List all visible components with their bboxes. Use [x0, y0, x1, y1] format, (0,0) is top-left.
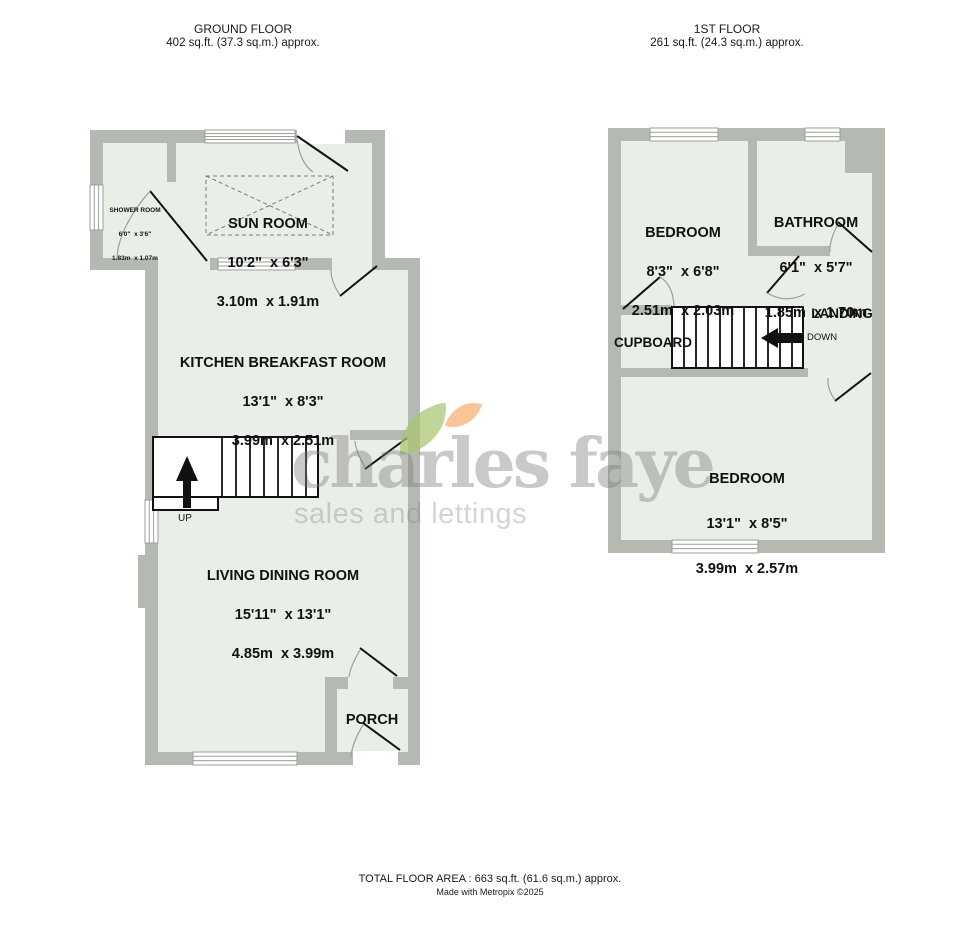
ground-floor-header: GROUND FLOOR 402 sq.ft. (37.3 sq.m.) app… [93, 22, 393, 50]
living-room-label: LIVING DINING ROOM 15'11" x 13'1" 4.85m … [158, 544, 408, 687]
floorplan-page: charles faye sales and lettings GROUND F… [0, 0, 980, 935]
stairs-up-label: UP [170, 513, 200, 524]
porch-exterior-door-gap [353, 751, 398, 766]
bedroom2-label: BEDROOM 13'1" x 8'5" 3.99m x 2.57m [647, 442, 847, 607]
kitchen-label: KITCHEN BREAKFAST ROOM 13'1" x 8'3" 3.99… [158, 331, 408, 474]
first-floor-area: 261 sq.ft. (24.3 sq.m.) approx. [577, 36, 877, 50]
first-floor-title: 1ST FLOOR [577, 22, 877, 36]
cupboard-label: CUPBOARD [592, 335, 714, 350]
total-floor-area: TOTAL FLOOR AREA : 663 sq.ft. (61.6 sq.m… [290, 873, 690, 886]
shower-room-label: SHOWER ROOM 6'0" x 3'6" 1.83m x 1.07m [95, 191, 175, 279]
living-front-window [193, 752, 297, 765]
footer: TOTAL FLOOR AREA : 663 sq.ft. (61.6 sq.m… [290, 873, 690, 899]
landing-label: LANDING [782, 306, 902, 321]
porch-label: PORCH [322, 712, 422, 728]
bedroom1-label: BEDROOM 8'3" x 6'8" 2.51m x 2.03m [613, 201, 753, 344]
sun-room-label: SUN ROOM 10'2" x 6'3" 3.10m x 1.91m [168, 192, 368, 335]
bathroom-label: BATHROOM 6'1" x 5'7" 1.85m x 1.70m [746, 186, 886, 351]
ground-floor-title: GROUND FLOOR [93, 22, 393, 36]
bathroom-window [805, 128, 840, 141]
credit-line: Made with Metropix ©2025 [290, 886, 690, 899]
ground-floor-area: 402 sq.ft. (37.3 sq.m.) approx. [93, 36, 393, 50]
stairs-down-label: DOWN [807, 332, 852, 343]
first-floor-header: 1ST FLOOR 261 sq.ft. (24.3 sq.m.) approx… [577, 22, 877, 50]
bedroom1-window [650, 128, 718, 141]
